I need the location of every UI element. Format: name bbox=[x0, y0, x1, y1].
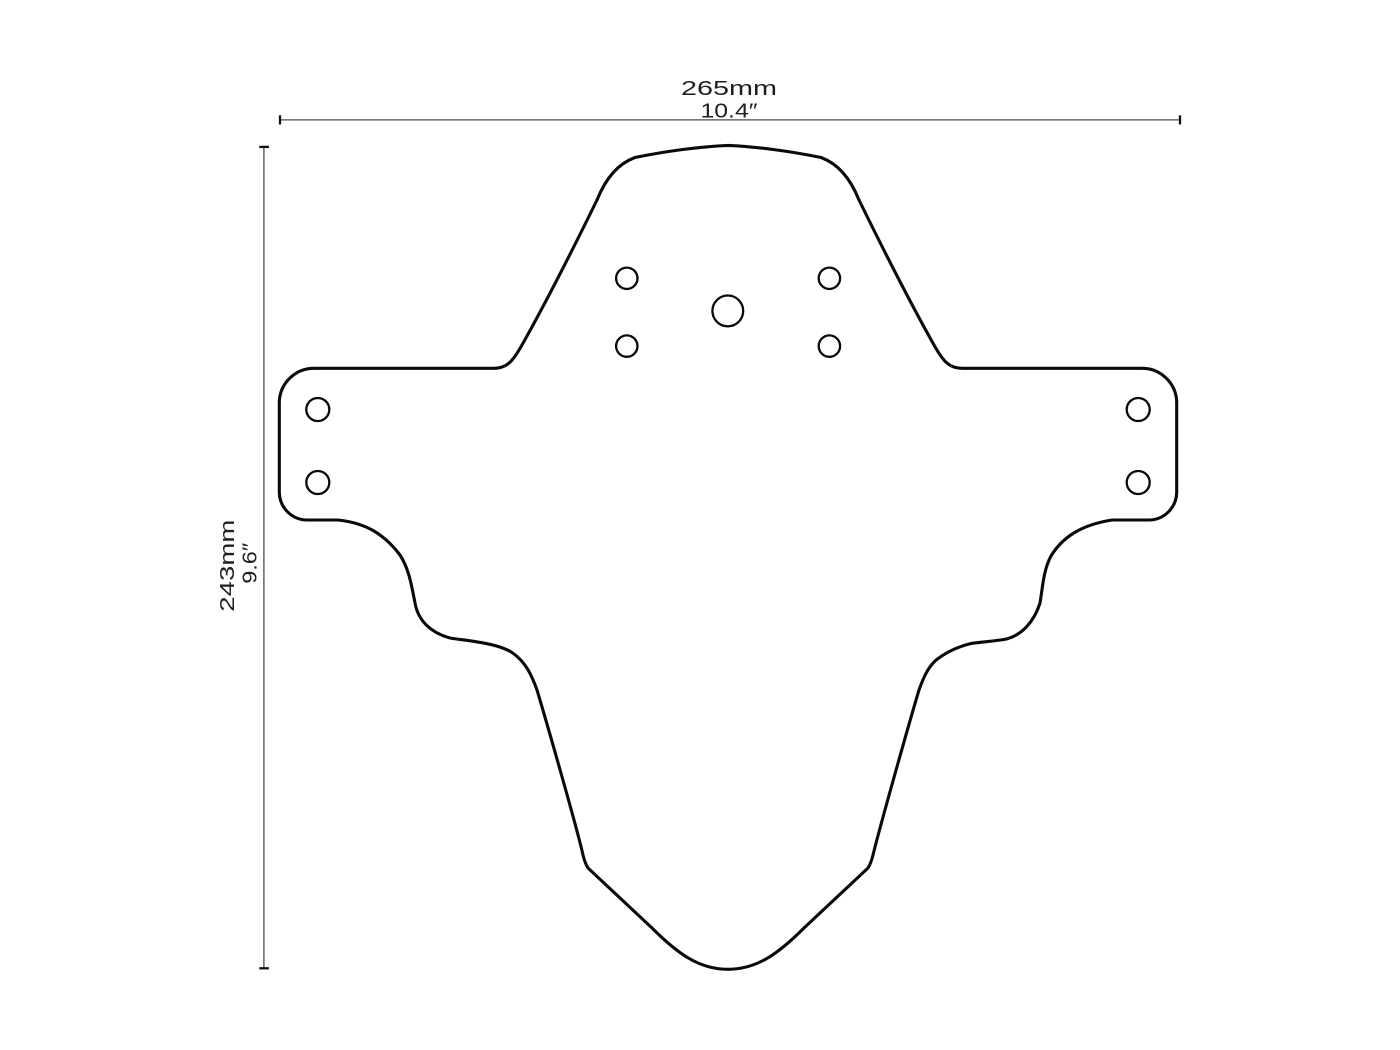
svg-text:243mm: 243mm bbox=[216, 520, 239, 612]
svg-text:10.4″: 10.4″ bbox=[701, 100, 758, 123]
svg-text:9.6″: 9.6″ bbox=[239, 543, 262, 584]
svg-text:265mm: 265mm bbox=[681, 77, 777, 100]
